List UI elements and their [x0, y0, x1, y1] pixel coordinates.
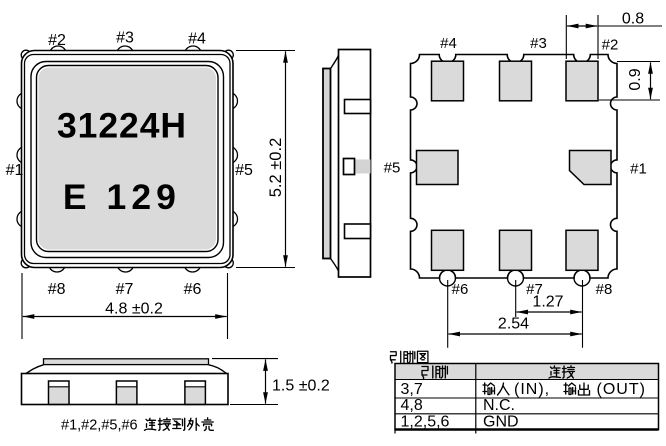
svg-text:N.C.: N.C. [483, 397, 515, 414]
svg-text:0.8: 0.8 [622, 11, 644, 28]
svg-text:#1: #1 [630, 161, 647, 178]
svg-text:1,2,5,6: 1,2,5,6 [401, 414, 450, 431]
svg-text:5.2 ±0.2: 5.2 ±0.2 [267, 138, 285, 198]
svg-text:4.8 ±0.2: 4.8 ±0.2 [105, 301, 163, 318]
svg-text:3,7: 3,7 [401, 381, 423, 398]
svg-text:#6: #6 [452, 281, 469, 298]
svg-text:#5: #5 [235, 162, 253, 179]
svg-text:#2: #2 [602, 37, 619, 54]
svg-text:0.9: 0.9 [627, 68, 644, 90]
svg-text:#7: #7 [116, 281, 134, 298]
svg-text:#8: #8 [596, 281, 613, 298]
svg-text:1.5 ±0.2: 1.5 ±0.2 [272, 378, 330, 395]
svg-text:E 129: E 129 [63, 177, 176, 217]
svg-text:4,8: 4,8 [401, 397, 423, 414]
svg-text:#1,#2,#5,#6: #1,#2,#5,#6 [61, 418, 138, 434]
svg-text:2.54: 2.54 [498, 316, 529, 333]
svg-text:#2: #2 [48, 32, 66, 49]
svg-text:#1: #1 [6, 162, 24, 179]
svg-text:#3: #3 [116, 30, 134, 47]
svg-text:#6: #6 [184, 281, 202, 298]
svg-text:#3: #3 [530, 35, 547, 52]
svg-text:#8: #8 [48, 281, 66, 298]
svg-text:#4: #4 [188, 31, 206, 48]
svg-text:GND: GND [483, 414, 519, 431]
svg-text:(IN),: (IN), [514, 381, 550, 398]
svg-text:#4: #4 [440, 35, 457, 52]
svg-text:(OUT): (OUT) [597, 381, 646, 398]
svg-text:#5: #5 [384, 160, 401, 177]
svg-text:31224H: 31224H [57, 105, 186, 145]
svg-text:1.27: 1.27 [532, 294, 563, 311]
